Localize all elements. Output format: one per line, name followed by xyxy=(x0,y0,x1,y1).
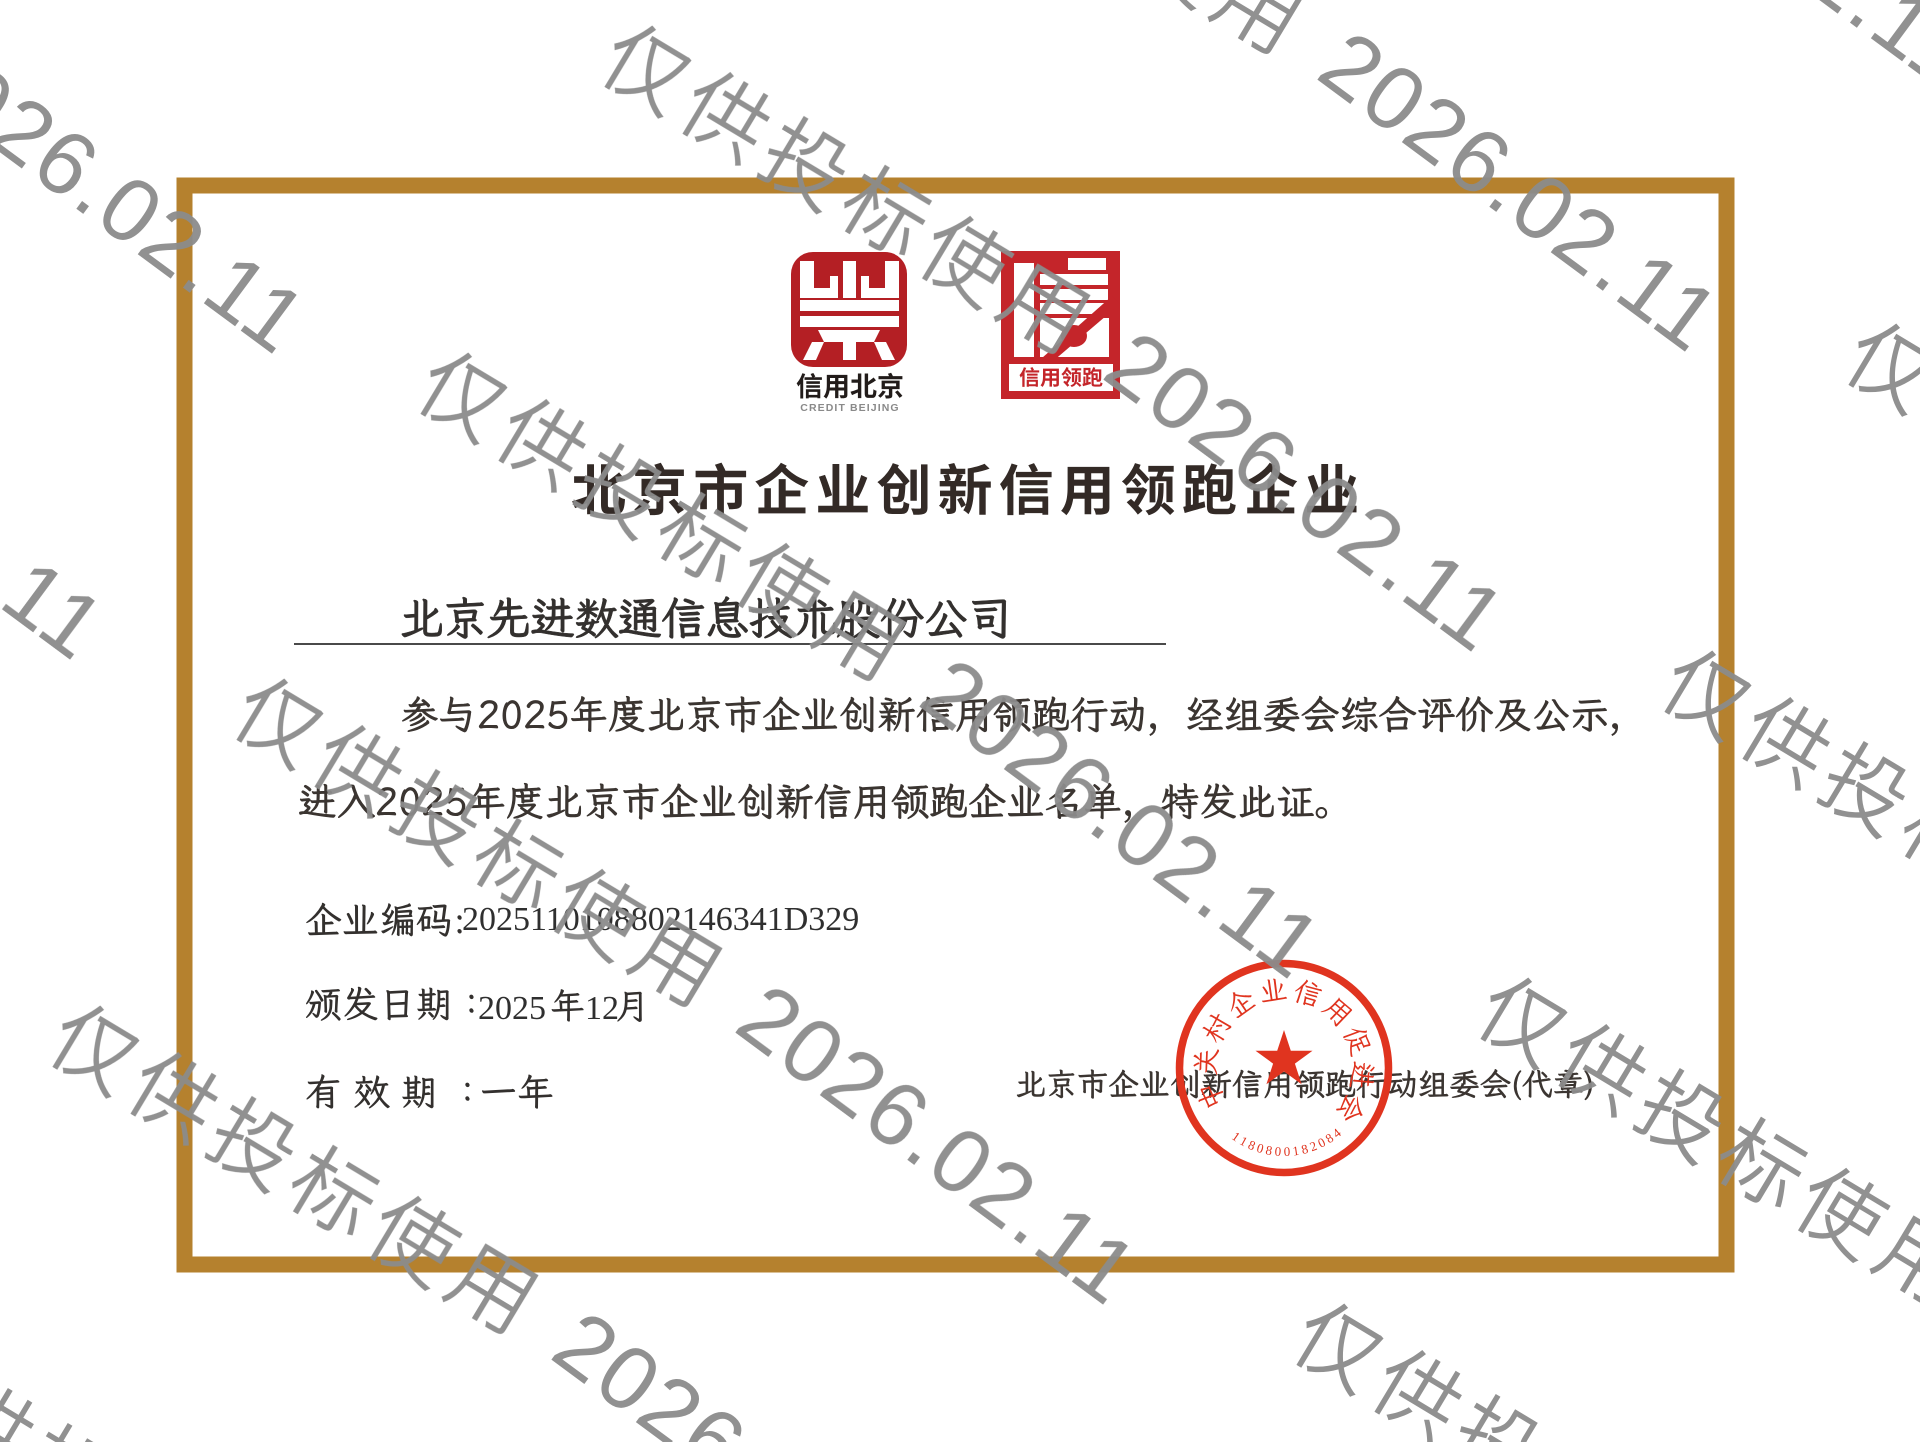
svg-text:0: 0 xyxy=(1274,1144,1282,1159)
svg-text:CREDIT BEIJING: CREDIT BEIJING xyxy=(800,402,899,414)
svg-text:2025: 2025 xyxy=(478,990,546,1027)
svg-text:0: 0 xyxy=(1283,1144,1290,1159)
svg-text:12: 12 xyxy=(585,990,619,1027)
